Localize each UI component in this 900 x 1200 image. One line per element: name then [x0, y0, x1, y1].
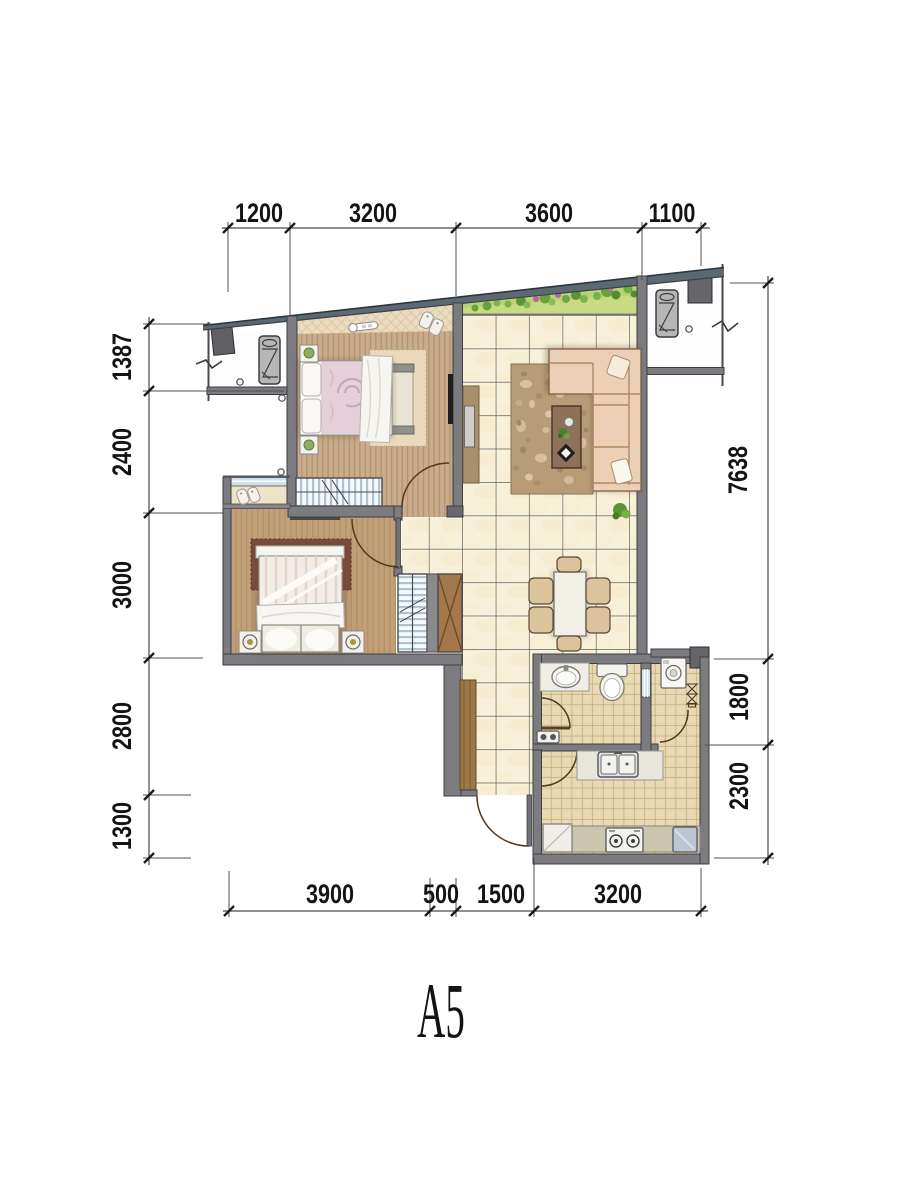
svg-text:2800: 2800 [108, 702, 138, 750]
svg-text:1200: 1200 [235, 199, 283, 229]
svg-text:7638: 7638 [724, 446, 754, 494]
svg-text:3200: 3200 [349, 199, 397, 229]
svg-text:1387: 1387 [108, 333, 138, 381]
svg-text:500: 500 [423, 880, 459, 910]
svg-text:1800: 1800 [725, 673, 755, 721]
svg-text:A5: A5 [417, 969, 465, 1055]
svg-text:3600: 3600 [525, 199, 573, 229]
svg-text:3900: 3900 [306, 880, 354, 910]
svg-text:2300: 2300 [725, 762, 755, 810]
svg-text:3000: 3000 [108, 561, 138, 609]
svg-text:1500: 1500 [477, 880, 525, 910]
svg-text:1300: 1300 [108, 802, 138, 850]
svg-text:2400: 2400 [108, 428, 138, 476]
svg-text:1100: 1100 [649, 199, 696, 229]
svg-text:3200: 3200 [594, 880, 642, 910]
